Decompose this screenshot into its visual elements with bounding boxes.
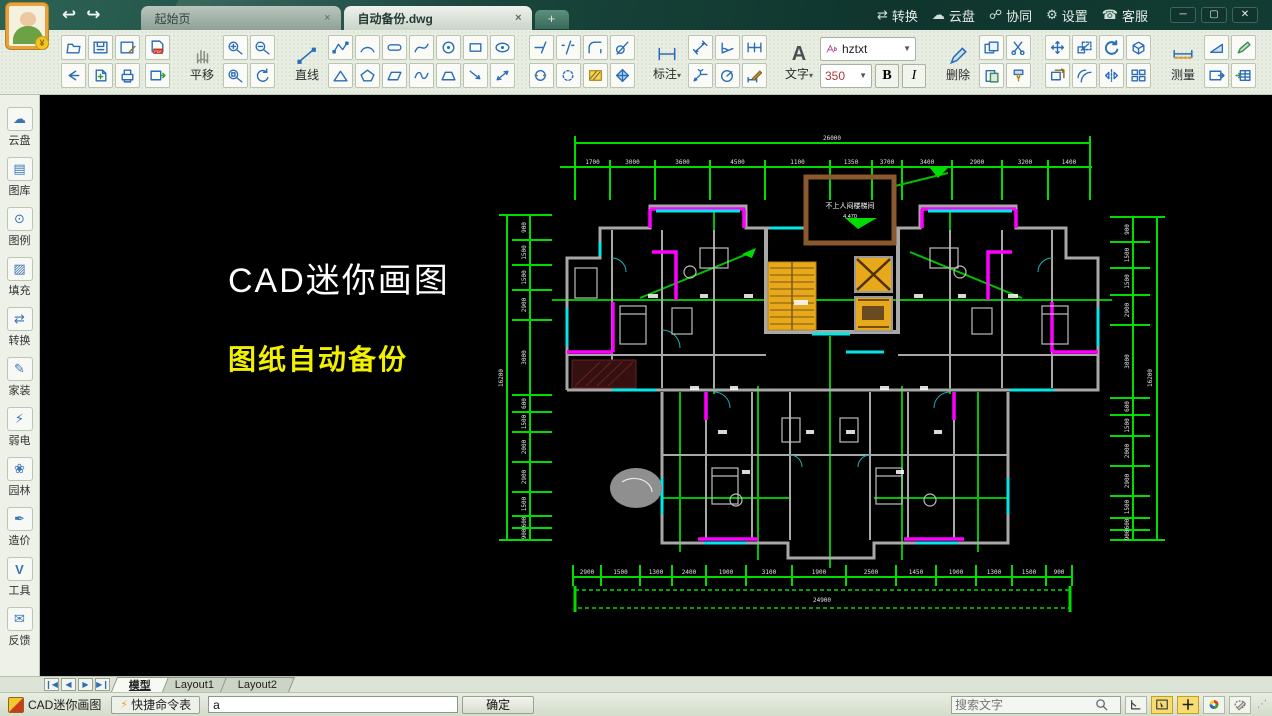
- save-icon: [92, 40, 109, 55]
- svg-text:3700: 3700: [880, 159, 895, 166]
- sidebar-item-hatch[interactable]: ▨填充: [7, 257, 33, 298]
- search-box[interactable]: [951, 696, 1121, 714]
- wave-button[interactable]: [409, 63, 434, 88]
- slot-icon: [386, 40, 403, 55]
- annotate-pen-button[interactable]: [1229, 696, 1251, 714]
- next-tab-icon[interactable]: ▶: [78, 678, 93, 691]
- wave-icon: [413, 68, 430, 83]
- crosshair-toggle[interactable]: [1177, 696, 1199, 714]
- svg-text:2400: 2400: [682, 569, 697, 576]
- svg-text:900: 900: [521, 222, 528, 233]
- save-as-button[interactable]: [115, 35, 140, 60]
- command-input[interactable]: [208, 696, 458, 713]
- sidebar-item-gallery[interactable]: ▤图库: [7, 157, 33, 198]
- svg-text:2900: 2900: [1124, 302, 1131, 317]
- drawing-canvas[interactable]: 不上人闷楼梯间 4.470 17003000360045001100135037…: [40, 95, 1272, 676]
- offset-button[interactable]: [1072, 63, 1097, 88]
- hand-pan-icon: [191, 45, 213, 65]
- tab-start-page[interactable]: 起始页 ×: [141, 6, 341, 30]
- polygon-button[interactable]: [355, 63, 380, 88]
- font-size-value: 350: [825, 69, 845, 83]
- font-family-select[interactable]: hztxt ▼: [820, 37, 916, 61]
- ellipse-icon: [494, 40, 511, 55]
- hatched-floor: [572, 360, 636, 388]
- zoom-previous-icon: [254, 68, 271, 83]
- main-toolbar: PDF 平移 直线: [0, 30, 1272, 95]
- text-tool[interactable]: A 文字▾: [781, 35, 817, 89]
- gear-icon: ⚙: [1046, 7, 1058, 23]
- svg-text:1700: 1700: [585, 159, 600, 166]
- circle-button[interactable]: [436, 35, 461, 60]
- shortcut-commands-button[interactable]: ⚡ 快捷命令表: [111, 696, 200, 714]
- ruler-icon: [1172, 45, 1194, 65]
- svg-text:PDF: PDF: [154, 50, 162, 54]
- prev-tab-icon[interactable]: ◀: [61, 678, 76, 691]
- continuous-dim-button[interactable]: [742, 35, 767, 60]
- compass-icon: ⊙: [7, 207, 33, 231]
- spline-icon: [413, 40, 430, 55]
- floorplan-drawing: 不上人闷楼梯间 4.470 17003000360045001100135037…: [40, 95, 1272, 676]
- svg-text:1500: 1500: [1124, 247, 1131, 262]
- avatar-coin-badge: ¥: [35, 36, 49, 50]
- svg-text:16200: 16200: [498, 369, 505, 387]
- tab-label: 起始页: [155, 10, 191, 27]
- svg-text:4500: 4500: [730, 159, 745, 166]
- zoom-out-button[interactable]: [250, 35, 275, 60]
- measure-tool[interactable]: 测量: [1165, 35, 1201, 89]
- history-forward-icon[interactable]: ↪: [86, 5, 100, 25]
- home-pencil-icon: ✎: [7, 357, 33, 381]
- paste-button[interactable]: [979, 63, 1004, 88]
- scale-button[interactable]: [1072, 35, 1097, 60]
- copy-button[interactable]: [979, 35, 1004, 60]
- watermark-title: CAD迷你画图: [228, 253, 450, 302]
- svg-text:900: 900: [1054, 569, 1065, 576]
- tangent-circle-icon: [614, 40, 631, 55]
- cursor-box-icon: [1155, 698, 1169, 711]
- printer-icon: [119, 68, 136, 83]
- table-export-icon: [1235, 68, 1252, 83]
- zoom-window-button[interactable]: [223, 63, 248, 88]
- svg-text:600: 600: [1124, 518, 1131, 529]
- lightning-pencil-icon: ⚡: [7, 407, 33, 431]
- back-arrow-icon: [65, 68, 82, 83]
- svg-text:900: 900: [1124, 529, 1131, 540]
- sidebar-item-electric[interactable]: ⚡弱电: [7, 407, 33, 448]
- line-tool[interactable]: 直线: [289, 35, 325, 89]
- arc-icon: [359, 40, 376, 55]
- svg-text:1350: 1350: [844, 159, 859, 166]
- select-mode-toggle[interactable]: [1151, 696, 1173, 714]
- svg-text:1500: 1500: [613, 569, 628, 576]
- sidebar-item-convert[interactable]: ⇄转换: [7, 307, 33, 348]
- double-arrow-icon: [494, 68, 511, 83]
- viewport-button[interactable]: [1126, 35, 1151, 60]
- svg-text:24900: 24900: [813, 597, 831, 604]
- save-as-icon: [119, 40, 136, 55]
- door-arcs: [612, 258, 1052, 467]
- export-image-button[interactable]: [145, 63, 170, 88]
- italic-button[interactable]: I: [902, 64, 926, 88]
- parallelogram-icon: [386, 68, 403, 83]
- menu-settings[interactable]: ⚙设置: [1046, 6, 1088, 25]
- insert-image-button[interactable]: [1204, 63, 1229, 88]
- copy-icon: [983, 40, 1000, 55]
- menu-support[interactable]: ☎客服: [1102, 6, 1148, 25]
- move-icon: [1049, 40, 1066, 55]
- last-tab-icon[interactable]: ▶❙: [95, 678, 110, 691]
- bold-button[interactable]: B: [875, 64, 899, 88]
- hatch-icon: ▨: [7, 257, 33, 281]
- svg-text:600: 600: [1124, 401, 1131, 412]
- pen-icon: ✒: [7, 507, 33, 531]
- stair-shaft-label: 不上人闷楼梯间: [826, 201, 875, 210]
- svg-text:1100: 1100: [790, 159, 805, 166]
- 3d-diamond-icon: [614, 68, 631, 83]
- angle-dim-button[interactable]: [715, 35, 740, 60]
- svg-text:2500: 2500: [864, 569, 879, 576]
- svg-text:1500: 1500: [1124, 274, 1131, 289]
- parallelogram-button[interactable]: [382, 63, 407, 88]
- rectangle-icon: [467, 40, 484, 55]
- svg-text:900: 900: [1124, 224, 1131, 235]
- format-brush-icon: [1010, 68, 1027, 83]
- pdf-icon: PDF: [149, 40, 166, 55]
- dimension-icon: [656, 44, 678, 64]
- sidebar-item-cloud[interactable]: ☁云盘: [7, 107, 33, 148]
- tab-model[interactable]: 模型: [111, 677, 169, 692]
- polyline-icon: [332, 40, 349, 55]
- arc-button[interactable]: [355, 35, 380, 60]
- sidebar-item-home-design[interactable]: ✎家装: [7, 357, 33, 398]
- convert-icon: ⇄: [7, 307, 33, 331]
- delete-tool[interactable]: 删除: [940, 35, 976, 89]
- green-pencil-icon: [1235, 40, 1252, 55]
- lightning-icon: ⚡: [120, 698, 128, 711]
- collaborate-icon: ☍: [989, 7, 1002, 23]
- paste-icon: [983, 68, 1000, 83]
- trapezoid-icon: [440, 68, 457, 83]
- export-pdf-button[interactable]: PDF: [145, 35, 170, 60]
- confirm-button[interactable]: 确定: [462, 696, 534, 714]
- scissors-icon: [1010, 40, 1027, 55]
- extend-button[interactable]: [529, 35, 554, 60]
- aligned-dim-icon: [692, 40, 709, 55]
- avatar-head-icon: [20, 12, 36, 26]
- radius-dim-icon: [719, 68, 736, 83]
- maximize-button[interactable]: ▢: [1201, 7, 1227, 23]
- font-size-select[interactable]: 350 ▼: [820, 64, 872, 88]
- insert-image-icon: [1208, 68, 1225, 83]
- sidebar-item-garden[interactable]: ❀园林: [7, 457, 33, 498]
- svg-text:2000: 2000: [1124, 443, 1131, 458]
- text-A-icon: A: [792, 41, 806, 67]
- tab-close-icon[interactable]: ×: [515, 12, 521, 24]
- dashed-circle-button[interactable]: [556, 63, 581, 88]
- svg-text:2900: 2900: [970, 159, 985, 166]
- svg-text:2900: 2900: [521, 469, 528, 484]
- rotate-button[interactable]: [1099, 35, 1124, 60]
- color-wheel-icon: [1207, 698, 1221, 711]
- cube-icon: [1130, 40, 1147, 55]
- hatch-button[interactable]: [583, 63, 608, 88]
- new-tab-button[interactable]: +: [535, 10, 569, 29]
- tab-close-icon[interactable]: ×: [324, 12, 330, 24]
- first-tab-icon[interactable]: ❙◀: [44, 678, 59, 691]
- svg-text:3000: 3000: [521, 350, 528, 365]
- font-style-icon: [825, 43, 839, 55]
- arrow-button[interactable]: [463, 63, 488, 88]
- svg-text:2900: 2900: [521, 297, 528, 312]
- area-icon: [1208, 40, 1225, 55]
- dashed-circle-icon: [560, 68, 577, 83]
- watermark-subtitle: 图纸自动备份: [228, 338, 408, 378]
- app-name: CAD迷你画图: [28, 696, 101, 713]
- triangle-button[interactable]: [328, 63, 353, 88]
- measure-edit-button[interactable]: [1231, 35, 1256, 60]
- line-icon: [296, 45, 318, 65]
- search-input[interactable]: [955, 698, 1095, 712]
- v-tools-icon: V: [7, 557, 33, 581]
- extend-icon: [533, 40, 550, 55]
- 3d-button[interactable]: [610, 63, 635, 88]
- axes-icon: [1129, 698, 1143, 711]
- dimension-tool[interactable]: 标注▾: [649, 35, 685, 89]
- svg-text:3000: 3000: [1124, 354, 1131, 369]
- app-logo-icon: [8, 697, 24, 713]
- crosshair-icon: [1181, 698, 1195, 711]
- svg-text:3000: 3000: [625, 159, 640, 166]
- stair-elevator-core: [768, 257, 892, 331]
- stair-elevation-value: 4.470: [843, 214, 857, 220]
- title-bar: ¥ ↩ ↪ 起始页 × 自动备份.dwg × + ⇄转换 ☁云盘 ☍协同 ⚙设置…: [0, 0, 1272, 30]
- fillet-icon: [587, 40, 604, 55]
- svg-text:600: 600: [521, 398, 528, 409]
- gallery-icon: ▤: [7, 157, 33, 181]
- sidebar-item-tools[interactable]: V工具: [7, 557, 33, 598]
- circle-icon: [440, 40, 457, 55]
- angle-dim-icon: [719, 40, 736, 55]
- back-button[interactable]: [61, 63, 86, 88]
- stair-shaft: [806, 177, 894, 243]
- trim-icon: [560, 40, 577, 55]
- spline-button[interactable]: [409, 35, 434, 60]
- triangle-icon: [332, 68, 349, 83]
- area-measure-button[interactable]: [1204, 35, 1229, 60]
- rectangle-button[interactable]: [463, 35, 488, 60]
- pen-icon: [1233, 698, 1247, 711]
- radius-dim-button[interactable]: [715, 63, 740, 88]
- svg-text:1500: 1500: [1124, 499, 1131, 514]
- svg-text:3100: 3100: [762, 569, 777, 576]
- rotate-copy-icon: [1049, 68, 1066, 83]
- chevron-down-icon: ▼: [853, 71, 867, 80]
- sidebar-item-cost[interactable]: ✒造价: [7, 507, 33, 548]
- slot-button[interactable]: [382, 35, 407, 60]
- break-circle-icon: [533, 68, 550, 83]
- trapezoid-button[interactable]: [436, 63, 461, 88]
- svg-text:2900: 2900: [580, 569, 595, 576]
- svg-text:1900: 1900: [949, 569, 964, 576]
- svg-text:1500: 1500: [1124, 418, 1131, 433]
- small-text-marks: [648, 294, 1018, 474]
- print-button[interactable]: [115, 63, 140, 88]
- headset-icon: ☎: [1102, 7, 1118, 23]
- open-folder-icon: [65, 40, 82, 55]
- array-icon: [1130, 68, 1147, 83]
- svg-text:900: 900: [521, 528, 528, 539]
- sidebar-item-feedback[interactable]: ✉反馈: [7, 607, 33, 648]
- chevron-down-icon: ▼: [897, 44, 911, 53]
- open-button[interactable]: [61, 35, 86, 60]
- save-button[interactable]: [88, 35, 113, 60]
- scale-icon: [1076, 40, 1093, 55]
- trim-button[interactable]: [556, 35, 581, 60]
- menu-convert[interactable]: ⇄转换: [877, 6, 918, 25]
- offset-icon: [1076, 68, 1093, 83]
- cloud-icon: ☁: [932, 7, 945, 23]
- svg-text:600: 600: [521, 516, 528, 527]
- svg-text:1500: 1500: [521, 245, 528, 260]
- export-table-button[interactable]: [1231, 63, 1256, 88]
- arrow-icon: [467, 68, 484, 83]
- cut-button[interactable]: [1006, 35, 1031, 60]
- sidebar-item-legend[interactable]: ⊙图例: [7, 207, 33, 248]
- svg-text:1900: 1900: [719, 569, 734, 576]
- svg-text:1300: 1300: [987, 569, 1002, 576]
- ellipse-button[interactable]: [490, 35, 515, 60]
- status-bar: CAD迷你画图 ⚡ 快捷命令表 确定 ⋰: [0, 692, 1272, 716]
- tab-autobackup-dwg[interactable]: 自动备份.dwg ×: [344, 6, 532, 30]
- layout-tab-bar: ❙◀ ◀ ▶ ▶❙ 模型 Layout1 Layout2: [0, 676, 1272, 692]
- tab-label: 自动备份.dwg: [358, 10, 433, 27]
- svg-text:1500: 1500: [521, 414, 528, 429]
- mirror-button[interactable]: [1099, 63, 1124, 88]
- eraser-pencil-icon: [947, 45, 969, 65]
- search-icon: [1095, 698, 1108, 711]
- leader-dim-button[interactable]: [688, 63, 713, 88]
- gray-blob: [610, 468, 662, 508]
- menu-collaborate[interactable]: ☍协同: [989, 6, 1032, 25]
- svg-text:1300: 1300: [649, 569, 664, 576]
- svg-text:1900: 1900: [812, 569, 827, 576]
- minimize-button[interactable]: ─: [1170, 7, 1196, 23]
- cloud-icon: ☁: [7, 107, 33, 131]
- dim-edit-button[interactable]: [742, 63, 767, 88]
- document-tabs: 起始页 × 自动备份.dwg × +: [141, 0, 569, 30]
- new-file-button[interactable]: [88, 63, 113, 88]
- rotate-icon: [1103, 40, 1120, 55]
- break-circle-button[interactable]: [529, 63, 554, 88]
- svg-text:1500: 1500: [521, 496, 528, 511]
- array-button[interactable]: [1126, 63, 1151, 88]
- svg-text:3400: 3400: [920, 159, 935, 166]
- format-brush-button[interactable]: [1006, 63, 1031, 88]
- tab-layout2[interactable]: Layout2: [220, 677, 295, 692]
- svg-text:1400: 1400: [1062, 159, 1077, 166]
- move-button[interactable]: [1045, 35, 1070, 60]
- svg-text:2900: 2900: [1124, 473, 1131, 488]
- hatch-icon: [587, 68, 604, 83]
- history-back-icon[interactable]: ↩: [62, 5, 76, 25]
- mirror-icon: [1103, 68, 1120, 83]
- pan-tool[interactable]: 平移: [184, 35, 220, 89]
- svg-text:3200: 3200: [1018, 159, 1033, 166]
- font-name-value: hztxt: [842, 42, 867, 56]
- svg-text:3600: 3600: [675, 159, 690, 166]
- resize-grip[interactable]: ⋰: [1257, 699, 1268, 710]
- zoom-in-button[interactable]: [223, 35, 248, 60]
- convert-icon: ⇄: [877, 7, 888, 23]
- ucs-axes-toggle[interactable]: [1125, 696, 1147, 714]
- svg-text:1450: 1450: [909, 569, 924, 576]
- new-file-icon: [92, 68, 109, 83]
- zoom-previous-button[interactable]: [250, 63, 275, 88]
- menu-cloud[interactable]: ☁云盘: [932, 6, 975, 25]
- double-arrow-button[interactable]: [490, 63, 515, 88]
- leader-icon: [692, 68, 709, 83]
- left-sidebar: ☁云盘 ▤图库 ⊙图例 ▨填充 ⇄转换 ✎家装 ⚡弱电 ❀园林 ✒造价 V工具 …: [0, 95, 40, 676]
- envelope-icon: ✉: [7, 607, 33, 631]
- fillet-button[interactable]: [583, 35, 608, 60]
- svg-text:1500: 1500: [1022, 569, 1037, 576]
- aligned-dim-button[interactable]: [688, 35, 713, 60]
- pentagon-icon: [359, 68, 376, 83]
- user-avatar[interactable]: ¥: [6, 3, 48, 49]
- continuous-dim-icon: [746, 40, 763, 55]
- close-button[interactable]: ✕: [1232, 7, 1258, 23]
- svg-text:26000: 26000: [823, 135, 841, 142]
- background-color-button[interactable]: [1203, 696, 1225, 714]
- dim-edit-icon: [746, 68, 763, 83]
- flower-pencil-icon: ❀: [7, 457, 33, 481]
- image-export-icon: [149, 68, 166, 83]
- rotate-copy-button[interactable]: [1045, 63, 1070, 88]
- svg-text:16200: 16200: [1147, 369, 1154, 387]
- polyline-button[interactable]: [328, 35, 353, 60]
- svg-text:1500: 1500: [521, 270, 528, 285]
- svg-text:2000: 2000: [521, 439, 528, 454]
- tangent-button[interactable]: [610, 35, 635, 60]
